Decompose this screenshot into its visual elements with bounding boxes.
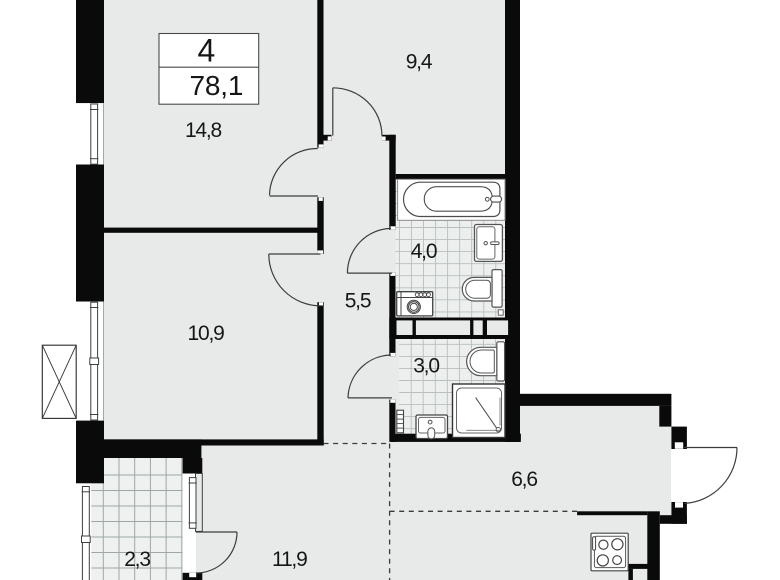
svg-text:14,8: 14,8: [185, 119, 222, 142]
svg-text:5,5: 5,5: [345, 290, 371, 313]
svg-text:6,6: 6,6: [511, 468, 537, 491]
svg-text:4,0: 4,0: [411, 240, 437, 263]
svg-text:10,9: 10,9: [188, 322, 225, 345]
svg-text:11,9: 11,9: [272, 548, 307, 571]
svg-text:4: 4: [197, 33, 215, 69]
svg-text:2,3: 2,3: [124, 548, 150, 571]
svg-text:78,1: 78,1: [190, 70, 244, 101]
svg-text:9,4: 9,4: [406, 50, 433, 73]
svg-text:3,0: 3,0: [413, 355, 439, 378]
